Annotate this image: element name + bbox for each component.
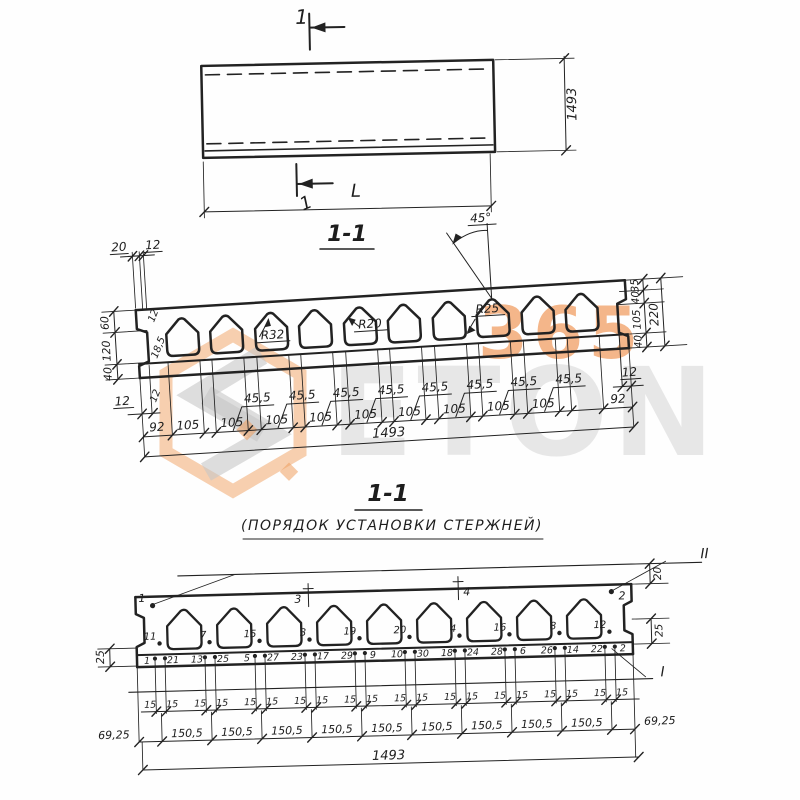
svg-text:45,5: 45,5 bbox=[510, 374, 538, 390]
section-title: 1-1 bbox=[327, 222, 367, 247]
svg-text:5: 5 bbox=[244, 653, 250, 664]
section-mark-bottom-arrow-icon bbox=[299, 179, 313, 189]
svg-text:92: 92 bbox=[610, 391, 626, 406]
placement-top-edge bbox=[135, 584, 631, 597]
placement-bottom-edge bbox=[137, 654, 633, 667]
svg-text:R25: R25 bbox=[475, 301, 499, 316]
svg-text:15: 15 bbox=[494, 690, 506, 701]
cut-line-II bbox=[178, 562, 702, 576]
svg-text:40: 40 bbox=[101, 367, 115, 382]
svg-text:29: 29 bbox=[341, 650, 353, 661]
svg-text:25: 25 bbox=[217, 654, 229, 665]
svg-text:105: 105 bbox=[176, 417, 200, 432]
svg-text:15: 15 bbox=[266, 696, 278, 707]
svg-text:R32: R32 bbox=[260, 327, 284, 342]
svg-text:15: 15 bbox=[594, 688, 606, 699]
svg-text:40: 40 bbox=[632, 334, 645, 348]
drawing-sheet: ETON 365 1 1 1493 L 1-1 bbox=[0, 0, 800, 800]
svg-text:12: 12 bbox=[593, 620, 606, 631]
svg-text:15: 15 bbox=[316, 695, 328, 706]
svg-text:105: 105 bbox=[398, 404, 422, 419]
svg-text:18: 18 bbox=[441, 648, 453, 659]
svg-text:15: 15 bbox=[416, 692, 428, 703]
svg-text:22: 22 bbox=[591, 644, 603, 655]
svg-text:150,5: 150,5 bbox=[321, 722, 353, 736]
svg-text:27: 27 bbox=[267, 652, 279, 663]
svg-text:15: 15 bbox=[294, 696, 306, 707]
svg-text:15: 15 bbox=[544, 689, 556, 700]
section-rightweb-dim: 12 bbox=[621, 365, 637, 380]
svg-text:3: 3 bbox=[300, 628, 307, 639]
cut-line-I-label: I bbox=[660, 664, 665, 680]
section-mark-top-label: 1 bbox=[295, 5, 308, 29]
section-mark-bottom-label: 1 bbox=[297, 191, 316, 215]
svg-text:28: 28 bbox=[491, 646, 503, 657]
svg-text:150,5: 150,5 bbox=[571, 716, 603, 730]
svg-text:45,5: 45,5 bbox=[555, 371, 583, 387]
corner-mark-2: 2 bbox=[618, 589, 625, 602]
svg-text:150,5: 150,5 bbox=[171, 726, 203, 740]
cut-line-II-label: II bbox=[700, 546, 709, 562]
svg-text:1: 1 bbox=[144, 656, 150, 667]
svg-text:150,5: 150,5 bbox=[521, 717, 553, 731]
placement-title: 1-1 bbox=[367, 481, 409, 507]
svg-text:15: 15 bbox=[166, 699, 178, 710]
slab-plan-outline bbox=[201, 60, 495, 158]
svg-text:7: 7 bbox=[200, 630, 207, 641]
svg-text:23: 23 bbox=[291, 652, 303, 663]
svg-text:15: 15 bbox=[566, 689, 578, 700]
slab-plan-dashed-bottom bbox=[207, 138, 492, 144]
placement-right-dim-25: 25 bbox=[653, 623, 665, 637]
svg-text:17: 17 bbox=[317, 651, 329, 662]
dim-ticks bbox=[197, 54, 572, 217]
section-topleft-dim-20: 20 bbox=[111, 240, 127, 255]
svg-text:45,5: 45,5 bbox=[332, 385, 360, 401]
svg-text:45,5: 45,5 bbox=[244, 390, 272, 406]
svg-text:15: 15 bbox=[216, 698, 228, 709]
svg-text:13: 13 bbox=[191, 654, 203, 665]
placement-total-dim: 1493 bbox=[372, 748, 405, 764]
svg-text:35: 35 bbox=[629, 278, 642, 292]
svg-text:45,5: 45,5 bbox=[421, 379, 449, 395]
placement-left-dim: 25 bbox=[94, 650, 107, 664]
svg-text:105: 105 bbox=[486, 398, 510, 413]
svg-text:15: 15 bbox=[344, 694, 356, 705]
svg-text:15: 15 bbox=[366, 694, 378, 705]
placement-right-dim-20: 20 bbox=[652, 566, 664, 580]
svg-text:15: 15 bbox=[194, 698, 206, 709]
svg-text:150,5: 150,5 bbox=[271, 724, 303, 738]
svg-text:15: 15 bbox=[516, 690, 528, 701]
svg-text:15: 15 bbox=[444, 692, 456, 703]
plan-length-dim: L bbox=[351, 181, 361, 202]
svg-text:120: 120 bbox=[100, 340, 114, 362]
svg-text:15: 15 bbox=[394, 693, 406, 704]
row-150-dims: 69,25 150,5 150,5 150,5 150,5 150,5 150,… bbox=[98, 714, 676, 742]
svg-text:105: 105 bbox=[354, 407, 378, 422]
svg-text:15: 15 bbox=[244, 697, 256, 708]
svg-text:15: 15 bbox=[243, 629, 256, 640]
svg-text:40: 40 bbox=[629, 290, 642, 304]
plan-height-dim: 1493 bbox=[565, 87, 581, 120]
svg-text:26: 26 bbox=[541, 645, 553, 656]
section-topleft-dim-12: 12 bbox=[145, 238, 161, 253]
svg-text:60: 60 bbox=[98, 316, 112, 331]
svg-text:45°: 45° bbox=[470, 210, 492, 225]
svg-text:8: 8 bbox=[550, 621, 557, 632]
svg-text:4: 4 bbox=[450, 624, 457, 635]
svg-text:150,5: 150,5 bbox=[221, 725, 253, 739]
svg-text:105: 105 bbox=[220, 415, 244, 430]
section-mark-bottom-line bbox=[296, 163, 333, 196]
svg-text:45,5: 45,5 bbox=[466, 376, 494, 392]
spacing-15-labels: 1515 1515 1515 1515 1515 1515 1515 1515 … bbox=[144, 687, 628, 711]
placement-subtitle: (ПОРЯДОК УСТАНОВКИ СТЕРЖНЕЙ) bbox=[241, 516, 543, 534]
web-top-mark-3: 3 bbox=[294, 593, 301, 606]
corner-mark-1: 1 bbox=[138, 592, 145, 605]
placement-voids bbox=[167, 599, 602, 649]
svg-text:16: 16 bbox=[493, 622, 506, 633]
section-inner-dim-2: 18,5 bbox=[150, 335, 168, 360]
svg-text:45,5: 45,5 bbox=[377, 382, 405, 398]
svg-text:105: 105 bbox=[531, 396, 555, 411]
web-top-mark-4: 4 bbox=[463, 585, 470, 598]
svg-text:92: 92 bbox=[149, 420, 165, 435]
svg-text:220: 220 bbox=[646, 302, 661, 326]
svg-text:150,5: 150,5 bbox=[471, 719, 503, 733]
slab-plan-inner-line bbox=[205, 145, 493, 151]
svg-text:24: 24 bbox=[467, 647, 479, 658]
svg-text:15: 15 bbox=[466, 691, 478, 702]
svg-text:20: 20 bbox=[393, 625, 406, 636]
slab-plan-dashed-top bbox=[205, 69, 490, 75]
svg-text:69,25: 69,25 bbox=[644, 714, 676, 728]
section-radius-labels: R32 R20 R25 bbox=[254, 301, 505, 347]
svg-text:105: 105 bbox=[631, 309, 644, 330]
svg-text:6: 6 bbox=[520, 646, 526, 657]
svg-text:10: 10 bbox=[391, 649, 403, 660]
top-view: 1 1 1493 L bbox=[196, 0, 583, 218]
svg-text:9: 9 bbox=[370, 650, 376, 661]
svg-text:45,5: 45,5 bbox=[288, 387, 316, 403]
section-leftweb-dim: 12 bbox=[114, 394, 130, 409]
section-mark-top-line bbox=[309, 13, 345, 50]
svg-text:R20: R20 bbox=[358, 316, 383, 331]
svg-text:2: 2 bbox=[620, 643, 626, 654]
svg-text:19: 19 bbox=[343, 626, 356, 637]
section-total-dim: 1493 bbox=[372, 425, 406, 442]
svg-text:30: 30 bbox=[417, 648, 429, 659]
drawing-canvas: ETON 365 1 1 1493 L 1-1 bbox=[0, 0, 800, 800]
svg-text:150,5: 150,5 bbox=[371, 721, 403, 735]
svg-text:105: 105 bbox=[442, 401, 466, 416]
svg-text:21: 21 bbox=[167, 655, 179, 666]
svg-text:150,5: 150,5 bbox=[421, 720, 453, 734]
svg-text:15: 15 bbox=[616, 687, 628, 698]
svg-text:15: 15 bbox=[144, 700, 156, 711]
svg-text:69,25: 69,25 bbox=[98, 728, 130, 742]
section-mark-top-arrow-icon bbox=[311, 22, 325, 32]
placement-view: II 1 2 3 4 11 7 15 3 19 20 4 16 8 12 bbox=[91, 546, 714, 776]
section-left-dims: 60 120 40 bbox=[98, 316, 115, 382]
svg-text:105: 105 bbox=[265, 412, 289, 427]
svg-text:105: 105 bbox=[309, 409, 333, 424]
svg-text:14: 14 bbox=[567, 645, 579, 656]
svg-text:11: 11 bbox=[144, 632, 157, 643]
